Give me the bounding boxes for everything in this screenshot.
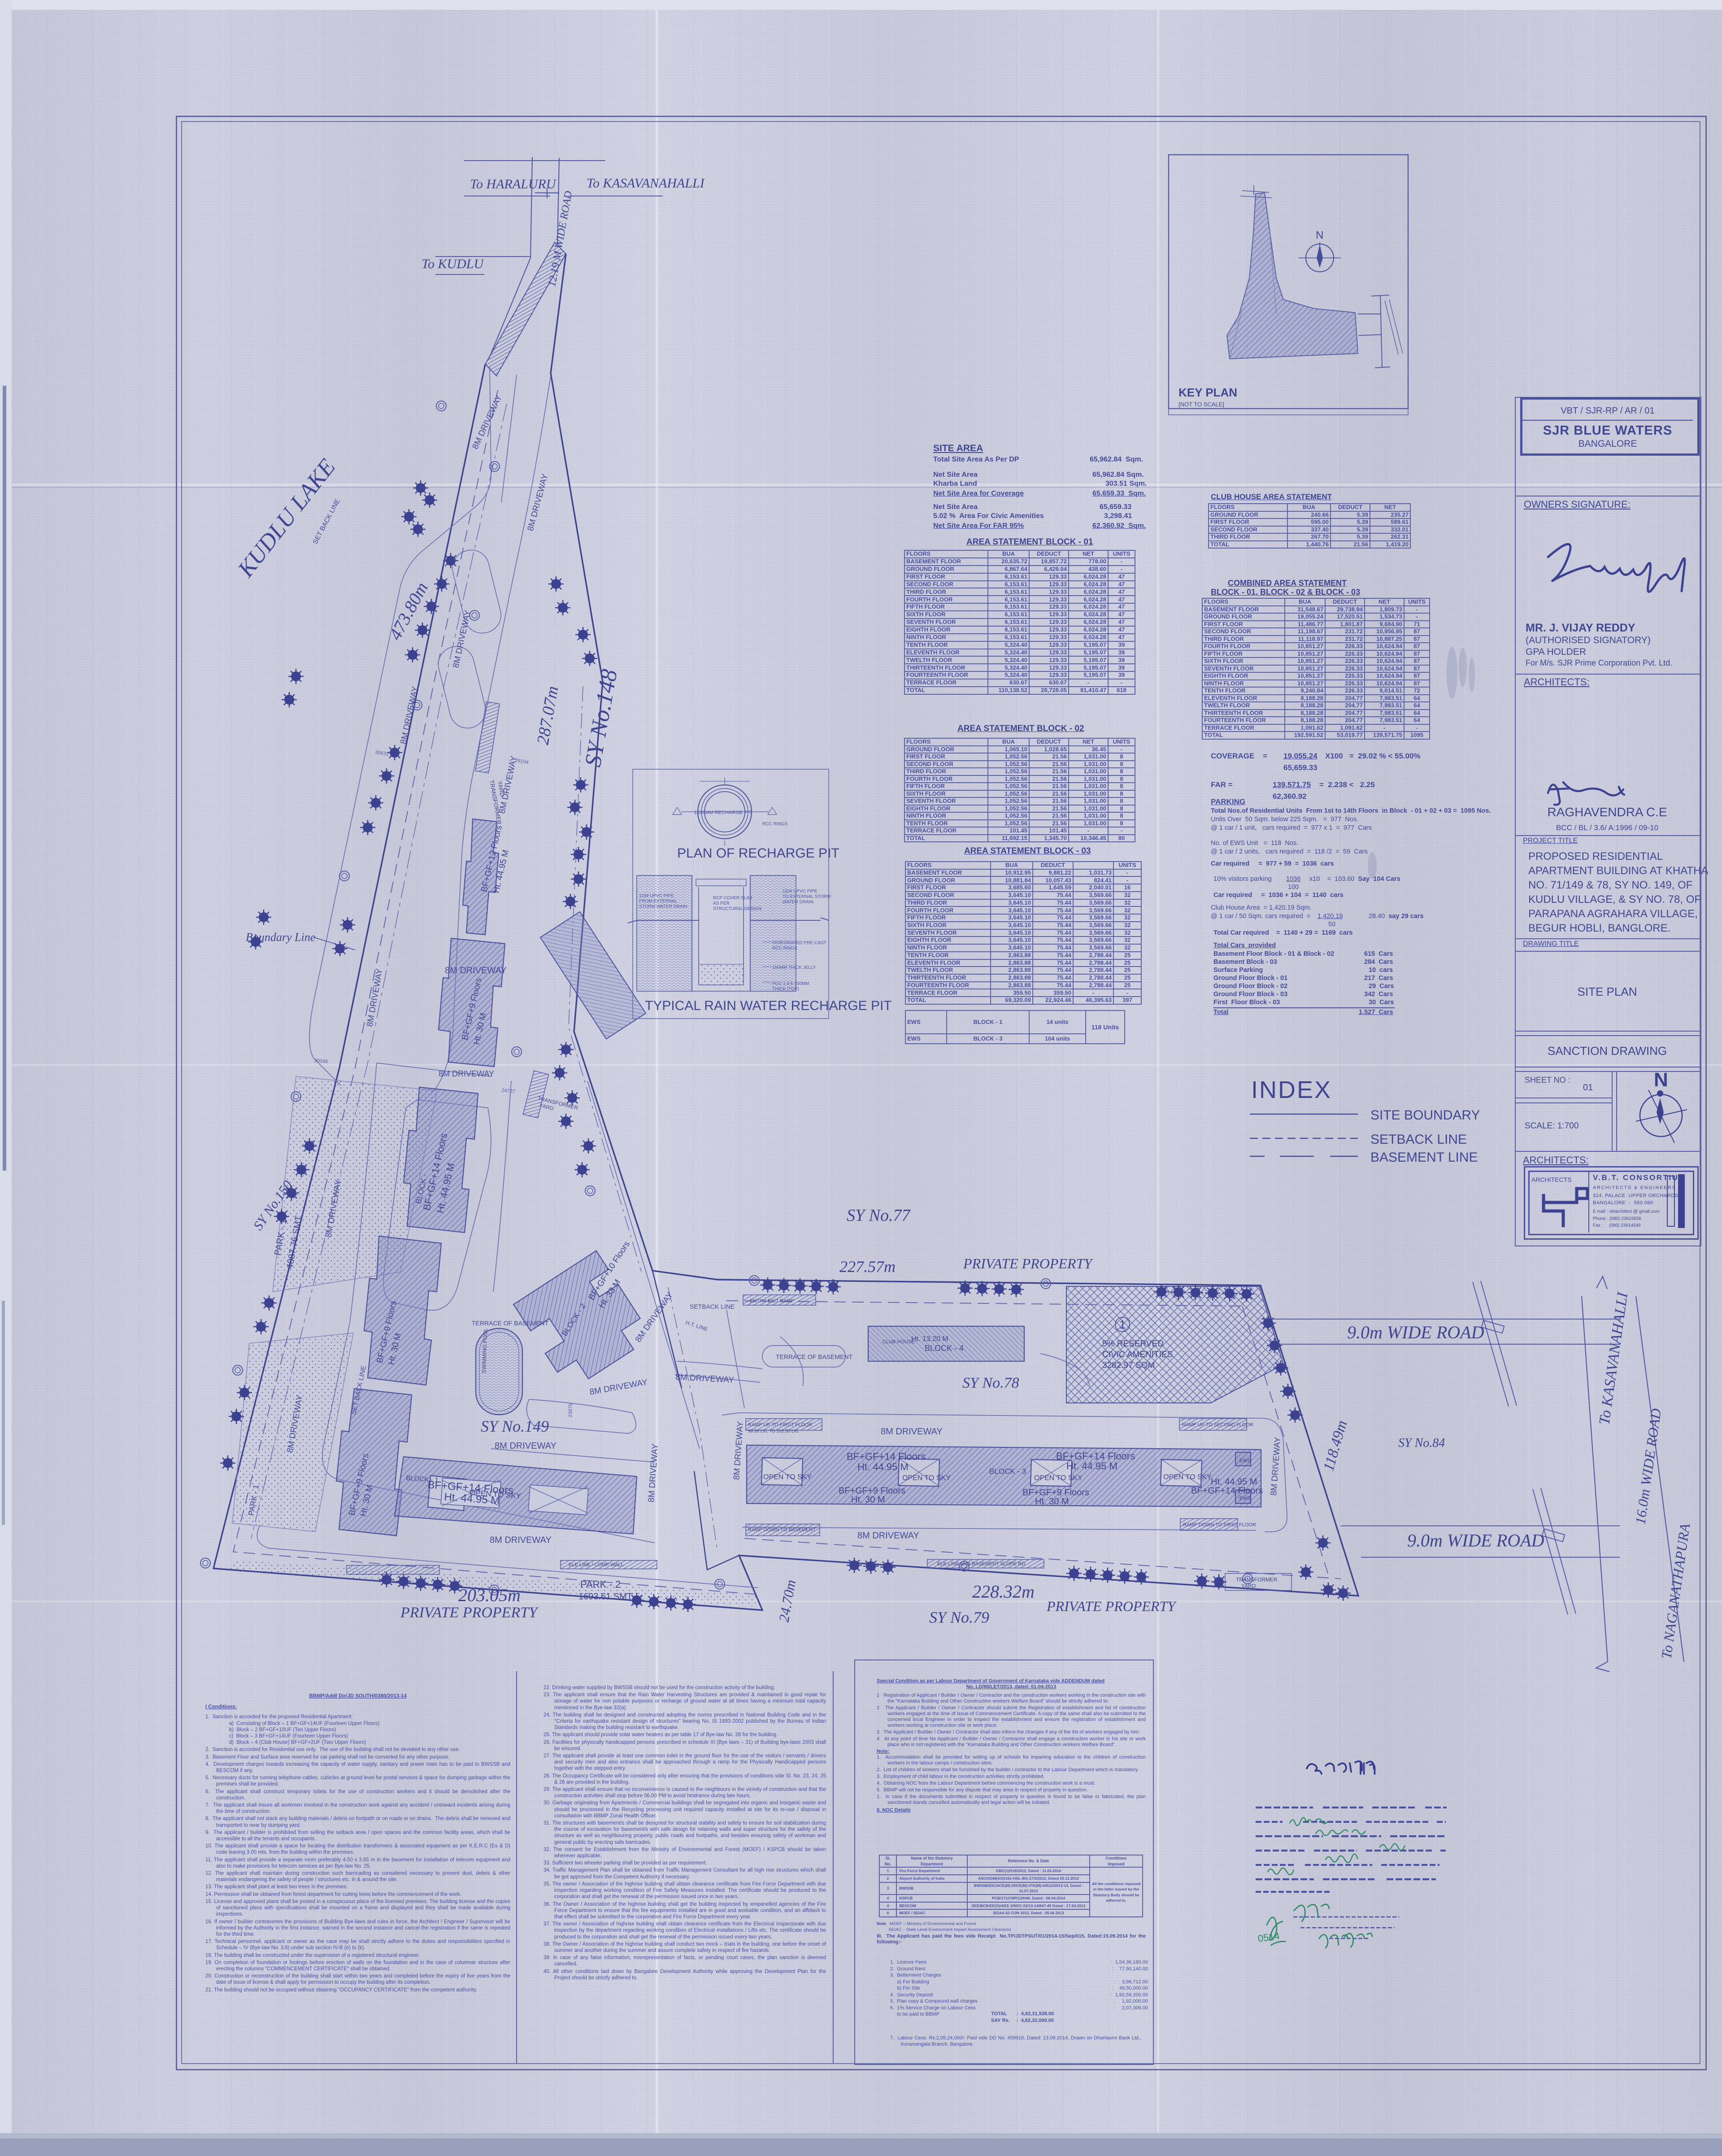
svg-text:Ht. 44.95 M: Ht. 44.95 M [857, 1461, 909, 1472]
svg-text:[NOT TO SCALE]: [NOT TO SCALE] [1178, 401, 1224, 408]
svg-text:TO EXTERNAL STORM: TO EXTERNAL STORM [783, 894, 831, 899]
svg-text:BASEMENT LINE: BASEMENT LINE [1370, 1150, 1478, 1165]
svg-text:8M DRIVEWAY: 8M DRIVEWAY [526, 473, 550, 532]
svg-text:Ht. 30 M: Ht. 30 M [851, 1495, 885, 1505]
svg-text:TRANSFORMER: TRANSFORMER [1236, 1577, 1278, 1583]
svg-text:TYPICAL RAIN WATER RECHARGE PI: TYPICAL RAIN WATER RECHARGE PIT [645, 998, 892, 1013]
svg-text:8M DRIVEWAY: 8M DRIVEWAY [445, 966, 507, 976]
svg-text:RAMP UP TO FIRST FLOOR: RAMP UP TO FIRST FLOOR [748, 1422, 812, 1428]
svg-text:H.T. LINE: H.T. LINE [685, 1320, 709, 1333]
svg-text:9.0m WIDE ROAD: 9.0m WIDE ROAD [1407, 1530, 1544, 1551]
svg-text:ENTRY EXIT RAMP: ENTRY EXIT RAMP [750, 1298, 794, 1304]
svg-text:9.0m WIDE ROAD: 9.0m WIDE ROAD [1347, 1322, 1484, 1342]
svg-text:KEY PLAN: KEY PLAN [1178, 386, 1237, 399]
svg-text:8M DRIVEWAY: 8M DRIVEWAY [470, 393, 504, 451]
svg-text:TERRACE OF BASEMENT: TERRACE OF BASEMENT [776, 1353, 853, 1360]
svg-text:8M DRIVEWAY: 8M DRIVEWAY [495, 1441, 557, 1451]
svg-text:OPEN TO SKY: OPEN TO SKY [1034, 1474, 1083, 1482]
svg-text:RCP COVER SLAB: RCP COVER SLAB [713, 896, 752, 901]
svg-text:SETBACK LINE: SETBACK LINE [1370, 1132, 1467, 1147]
svg-text:3282.97 SQM: 3282.97 SQM [1102, 1361, 1155, 1370]
svg-text:SY No.149: SY No.149 [481, 1417, 549, 1435]
svg-text:5% RESERVED: 5% RESERVED [1102, 1339, 1164, 1349]
svg-text:SETBACK LINE: SETBACK LINE [690, 1303, 735, 1310]
svg-text:8M DRIVEWAY: 8M DRIVEWAY [857, 1531, 919, 1541]
svg-text:Boundary Line: Boundary Line [246, 931, 315, 944]
svg-text:PARK - 2: PARK - 2 [580, 1579, 621, 1590]
svg-text:8M DRIVEWAY: 8M DRIVEWAY [399, 685, 420, 745]
svg-text:30048: 30048 [314, 1058, 328, 1064]
svg-text:To NAGANATHAPURA: To NAGANATHAPURA [1658, 1522, 1693, 1660]
svg-text:118.49m: 118.49m [1320, 1419, 1350, 1473]
svg-text:STRUCTURAL DESIGN: STRUCTURAL DESIGN [713, 906, 761, 911]
svg-text:BF+GF+9 Floors: BF+GF+9 Floors [839, 1486, 905, 1496]
svg-text:PLAN OF RECHARGE PIT: PLAN OF RECHARGE PIT [677, 846, 839, 861]
svg-text:8M DRIVEWAY: 8M DRIVEWAY [439, 1069, 494, 1078]
svg-text:1200MM RECHARGE PIT: 1200MM RECHARGE PIT [694, 810, 752, 815]
svg-text:OPEN TO SKY: OPEN TO SKY [902, 1474, 951, 1482]
svg-text:SY No.77: SY No.77 [847, 1206, 911, 1225]
svg-text:To KASAVANAHALLI: To KASAVANAHALLI [1596, 1290, 1631, 1426]
svg-text:8M DRIVEWAY: 8M DRIVEWAY [490, 1535, 552, 1545]
svg-text:TERRACE OF BASEMENT: TERRACE OF BASEMENT [472, 1320, 549, 1327]
svg-text:Ht. 30 M: Ht. 30 M [1035, 1497, 1069, 1507]
svg-text:To KUDLU: To KUDLU [422, 257, 484, 271]
svg-text:99.50 LVL TO 102.50 LVL: 99.50 LVL TO 102.50 LVL [748, 1429, 799, 1434]
svg-text:287.07m: 287.07m [534, 684, 562, 746]
svg-text:8M DRIVEWAY: 8M DRIVEWAY [647, 1443, 660, 1503]
svg-text:Ht. 13.20 M: Ht. 13.20 M [911, 1335, 948, 1343]
svg-text:OPEN TO SKY: OPEN TO SKY [1163, 1473, 1212, 1481]
svg-text:To HARALURU: To HARALURU [470, 177, 557, 192]
svg-text:227.57m: 227.57m [839, 1258, 896, 1276]
svg-text:150MM THICK JELLY: 150MM THICK JELLY [772, 965, 816, 970]
svg-text:OPEN TO SKY: OPEN TO SKY [763, 1473, 812, 1481]
svg-text:EWS: EWS [1239, 1458, 1251, 1463]
svg-text:110# UPVC PIPE: 110# UPVC PIPE [783, 889, 818, 894]
svg-text:RAMP UP TO SECOND FLOOR: RAMP UP TO SECOND FLOOR [1182, 1422, 1253, 1428]
svg-text:228.32m: 228.32m [972, 1581, 1035, 1602]
svg-text:24.70m: 24.70m [775, 1578, 799, 1623]
svg-text:STORM WATER DRAIN: STORM WATER DRAIN [639, 904, 687, 909]
svg-text:SY No.78: SY No.78 [962, 1375, 1019, 1391]
svg-text:PERFORATED PRE-CAST: PERFORATED PRE-CAST [772, 941, 826, 945]
svg-text:110# UPVC PIPE: 110# UPVC PIPE [639, 893, 674, 898]
svg-text:Ht. 44.95 M: Ht. 44.95 M [1211, 1477, 1257, 1487]
svg-text:1693.61 SMT: 1693.61 SMT [578, 1592, 632, 1602]
svg-text:8M DRIVEWAY: 8M DRIVEWAY [675, 1372, 735, 1385]
svg-text:To KASAVANAHALLI: To KASAVANAHALLI [587, 176, 705, 191]
svg-text:SY No.79: SY No.79 [929, 1608, 989, 1626]
svg-text:RAMP DOWN TO BASEMENT: RAMP DOWN TO BASEMENT [748, 1527, 816, 1533]
svg-text:8M DRIVEWAY: 8M DRIVEWAY [881, 1427, 943, 1437]
svg-text:23875: 23875 [568, 1403, 574, 1417]
svg-text:BF+GF+9 Floors: BF+GF+9 Floors [1022, 1488, 1089, 1498]
svg-text:RCC RINGS: RCC RINGS [772, 946, 797, 951]
svg-text:AS PER: AS PER [713, 901, 730, 906]
svg-text:RCC RINGS: RCC RINGS [762, 822, 787, 827]
svg-text:BF+GF+14 Floors: BF+GF+14 Floors [1191, 1486, 1263, 1496]
svg-text:YARD: YARD [1241, 1583, 1256, 1589]
svg-text:8M DRIVEWAY: 8M DRIVEWAY [451, 609, 473, 669]
svg-text:PRIVATE PROPERTY: PRIVATE PROPERTY [1046, 1598, 1177, 1614]
svg-text:SET BACK LINE: SET BACK LINE [312, 498, 342, 545]
svg-text:INDEX: INDEX [1251, 1076, 1332, 1103]
svg-text:PRIVATE PROPERTY: PRIVATE PROPERTY [400, 1604, 539, 1621]
svg-text:CIVIC AMENITIES: CIVIC AMENITIES [1102, 1350, 1173, 1359]
svg-text:WATER DRAIN: WATER DRAIN [783, 900, 813, 905]
svg-text:SY No.84: SY No.84 [1398, 1436, 1445, 1450]
svg-text:16.0m WIDE ROAD: 16.0m WIDE ROAD [1632, 1407, 1664, 1525]
svg-text:8M DRIVEWAY: 8M DRIVEWAY [365, 968, 384, 1028]
svg-text:EWS: EWS [1239, 1496, 1251, 1501]
svg-text:SY No.148: SY No.148 [580, 667, 622, 769]
svg-text:PCC 1:3:6 150MM: PCC 1:3:6 150MM [772, 981, 809, 986]
svg-text:24727: 24727 [501, 1088, 516, 1094]
svg-text:RAMP DOWN TO FIRST FLOOR: RAMP DOWN TO FIRST FLOOR [1183, 1522, 1256, 1528]
svg-text:Ht. 44.95 M: Ht. 44.95 M [1066, 1460, 1118, 1472]
svg-text:BLOCK - 4: BLOCK - 4 [925, 1344, 964, 1353]
svg-text:THICK (TOP): THICK (TOP) [772, 987, 799, 992]
svg-text:1: 1 [1119, 1318, 1126, 1331]
svg-text:12.19 M WIDE ROAD: 12.19 M WIDE ROAD [546, 190, 574, 287]
svg-text:8M DRIVEWAY: 8M DRIVEWAY [732, 1421, 745, 1480]
svg-text:30631: 30631 [374, 749, 389, 757]
svg-text:CLUB HOUSE: CLUB HOUSE [883, 1339, 915, 1345]
svg-text:8M DRIVEWAY: 8M DRIVEWAY [589, 1377, 648, 1397]
svg-text:SITE BOUNDARY: SITE BOUNDARY [1370, 1108, 1480, 1123]
svg-text:203.05m: 203.05m [458, 1585, 521, 1605]
svg-text:PRIVATE PROPERTY: PRIVATE PROPERTY [963, 1255, 1093, 1272]
svg-text:FROM EXTERNAL: FROM EXTERNAL [639, 899, 677, 904]
svg-text:ELE LINE AND BASEMENT SLOPE RD: ELE LINE AND BASEMENT SLOPE RD. [937, 1561, 1026, 1567]
svg-text:8M DRIVEWAY: 8M DRIVEWAY [1269, 1437, 1283, 1496]
svg-text:ELE LINE / COMP WALL: ELE LINE / COMP WALL [569, 1562, 624, 1568]
svg-text:BLOCK - 3: BLOCK - 3 [989, 1467, 1026, 1476]
svg-text:N: N [1316, 229, 1323, 241]
svg-text:BF+GF+14 Floors: BF+GF+14 Floors [847, 1451, 926, 1462]
